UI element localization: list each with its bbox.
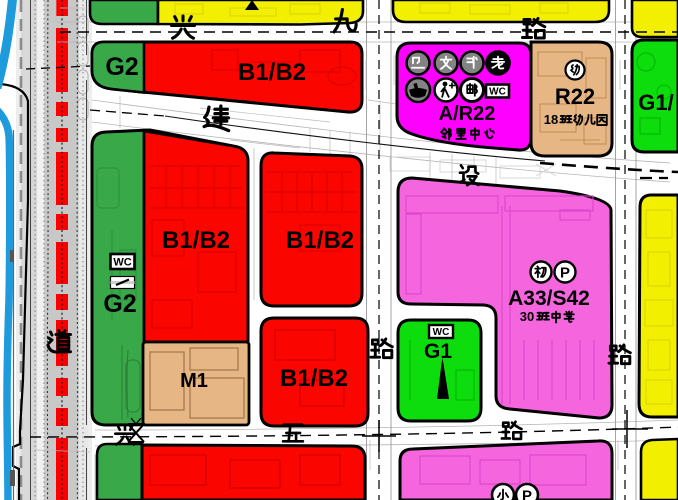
svg-text:B1/B2: B1/B2 (162, 227, 230, 254)
svg-text:18: 18 (544, 112, 558, 127)
svg-text:WC: WC (489, 87, 506, 98)
svg-text:G2: G2 (103, 290, 136, 318)
svg-text:P: P (522, 488, 532, 500)
svg-text:R22: R22 (555, 84, 595, 109)
svg-text:G2: G2 (105, 53, 138, 81)
svg-text:M1: M1 (180, 370, 208, 392)
svg-text:WC: WC (433, 327, 450, 338)
svg-text:A33/S42: A33/S42 (508, 287, 590, 310)
svg-text:30: 30 (520, 309, 534, 324)
svg-text:B1/B2: B1/B2 (286, 227, 354, 254)
svg-text:B1/B2: B1/B2 (280, 365, 348, 392)
svg-text:B1/B2: B1/B2 (238, 59, 306, 86)
svg-text:WC: WC (113, 257, 131, 269)
svg-text:A/R22: A/R22 (439, 103, 496, 125)
svg-text:G1: G1 (424, 340, 452, 363)
svg-text:P: P (560, 265, 570, 282)
svg-text:G1/: G1/ (638, 90, 673, 115)
